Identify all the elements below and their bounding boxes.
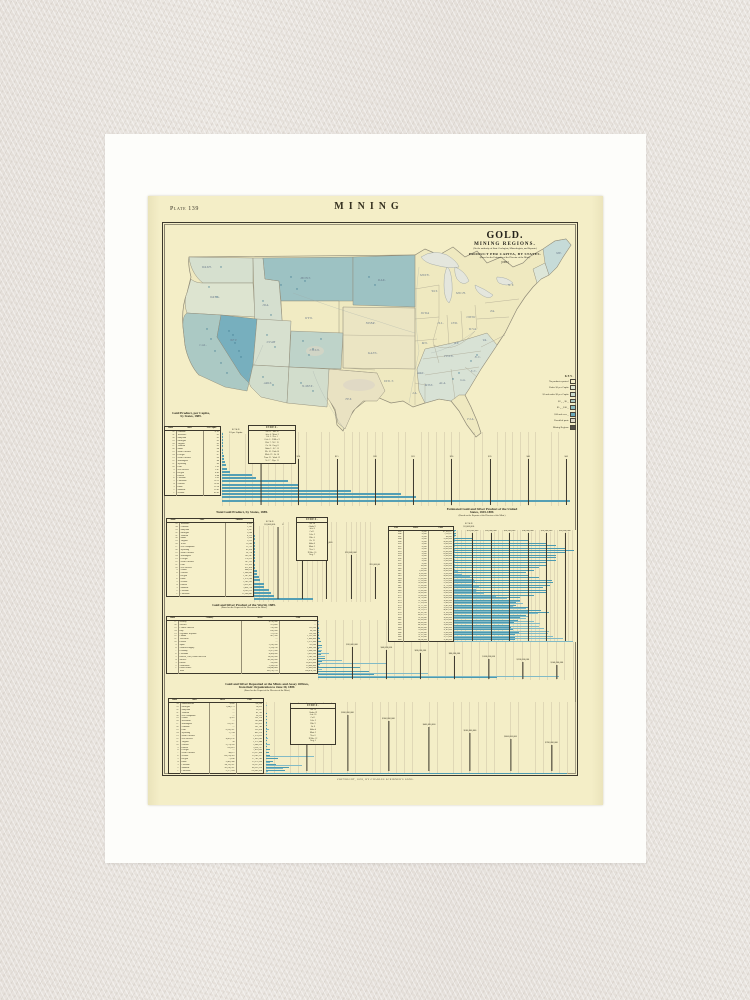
map-state-label: IND.T. <box>384 379 394 383</box>
scale-label-text: $15 <box>335 456 339 458</box>
key-row: Unsettled parts <box>510 418 576 425</box>
scale-label-text: $140,000,000 <box>550 662 563 664</box>
percapita-scale-note: SCALE. $1 per Capita. <box>224 428 248 434</box>
deposited-index-box: INDEX. Ala. 16Alaska 19Ariz. 10Cal. 1Col… <box>290 703 336 745</box>
scale-tick-line <box>352 647 353 679</box>
map-state-label: KY. <box>454 341 459 345</box>
scale-label: $5,000,000 <box>273 524 284 599</box>
scale-label: $30 <box>449 456 453 505</box>
map-key: KEY. No product reported Under $1 per Ca… <box>510 375 576 431</box>
scale-label-text: $20,000,000 <box>346 644 358 646</box>
scale-tick-line <box>490 459 491 505</box>
scale-tick-line <box>260 459 261 505</box>
deposited-header: Gold and Silver Deposited at the Mints a… <box>162 682 372 693</box>
scale-tick-line <box>388 721 389 771</box>
map-state-label: MICH. <box>456 291 466 295</box>
scale-tick-line <box>528 459 529 505</box>
table-row: 1 Nevada 45.62 <box>165 492 221 495</box>
scale-tick-line <box>298 459 299 505</box>
scale-label-text: $80,000,000 <box>448 653 460 655</box>
deposited-table: Rank State Silver Gold 24 Massachusetts … <box>168 698 264 774</box>
map-state-label: N.Y. <box>508 283 514 287</box>
scale-tick-line <box>413 459 414 505</box>
gold-cell: 736,982,858 <box>236 770 264 773</box>
map-state-label: GA. <box>460 378 466 382</box>
key-swatch <box>570 385 576 390</box>
scale-tick-line <box>566 459 567 505</box>
atlas-plate: Plate 139 MINING <box>148 196 603 805</box>
map-state-label: CAL. <box>199 343 207 347</box>
map-source-note: (Based on the Estimates of the Director … <box>445 257 565 260</box>
rank-cell: 1 <box>165 492 177 495</box>
scale-label: $20,000,000 <box>346 644 358 679</box>
scale-label-text: $300,000,000 <box>382 718 395 720</box>
scale-tick-line <box>557 665 558 679</box>
scale-label: $20 <box>373 456 377 505</box>
gold-cell: 104,674,300 <box>279 670 318 673</box>
scale-label: $45 <box>564 456 568 505</box>
total-scale-note: SCALE. $1,000,000. <box>258 520 282 526</box>
map-state-label: OREG. <box>210 295 221 299</box>
scale-tick-line <box>429 727 430 771</box>
scale-label-text: $30,000,000 <box>503 530 515 532</box>
map-state-label: NEV. <box>230 338 237 342</box>
scale-tick-line <box>454 656 455 679</box>
world-header-note: (Based on the Report of the Director of … <box>166 607 322 610</box>
scale-label-text: $200,000,000 <box>341 712 354 714</box>
rank-cell <box>167 670 179 673</box>
key-swatch <box>570 412 576 417</box>
scale-label-text: $40,000,000 <box>522 530 534 532</box>
scale-label-text: $120,000,000 <box>516 659 529 661</box>
map-state-label: MONT. <box>301 276 312 280</box>
map-state-label: TENN. <box>444 354 454 358</box>
percapita-table: Rank State Per Capita 22 Alabama $ .01 2… <box>164 426 221 496</box>
scale-label-text: $20,000,000 <box>345 552 357 554</box>
amount-cell: 12,266,841 <box>225 593 254 596</box>
key-label: $2 „ „ $5 „ <box>558 400 568 403</box>
map-state-label: TEX. <box>345 397 352 401</box>
map-state-label: NEBR. <box>366 321 376 325</box>
estimated-chart: $10,000,000$20,000,000$30,000,000$40,000… <box>454 530 576 642</box>
index-line: Vt. 17 · Wyo. 11 <box>249 460 295 463</box>
rank-cell: 1 <box>169 770 181 773</box>
art-print-mat: Plate 139 MINING <box>105 134 646 863</box>
map-state-label: FLA. <box>467 417 474 421</box>
scale-tick-line <box>278 527 279 599</box>
key-swatch <box>570 392 576 397</box>
map-state-label: ALA. <box>439 381 446 385</box>
map-state-label: ILL. <box>438 321 444 325</box>
key-row: $1 and under $2 per Capita <box>510 391 576 398</box>
world-header: Gold and Silver Product of the World, 18… <box>166 603 322 610</box>
scale-label-text: $50,000,000 <box>540 530 552 532</box>
year-cell: 1889 <box>389 639 404 642</box>
scale-tick-line <box>565 533 566 641</box>
key-label: Mining Regions <box>553 426 568 429</box>
scale-tick-line <box>451 459 452 505</box>
key-swatch <box>570 379 576 384</box>
map-state-label: N.C. <box>475 355 482 359</box>
state-nebraska-kansas <box>343 307 415 369</box>
key-label: Under $1 per Capita <box>549 386 568 389</box>
map-state-label: PA. <box>490 309 495 313</box>
scale-label: $40,000,000 <box>380 647 392 679</box>
page-header: MINING <box>162 201 576 212</box>
title-block: GOLD. MINING REGIONS. (On the authority … <box>445 230 565 264</box>
map-authority-note: (On the authority of State Geologists, M… <box>445 248 565 251</box>
key-label: $10 and over „ <box>554 413 568 416</box>
silver-cell: 5,377,264 <box>209 770 236 773</box>
map-state-label: IND. <box>451 321 458 325</box>
key-label: $1 and under $2 per Capita <box>543 393 569 396</box>
scale-tick-line <box>509 533 510 641</box>
state-cell: Nevada <box>176 492 203 495</box>
scale-label-text: $30 <box>449 456 453 458</box>
scale-label: $600,000,000 <box>504 736 517 771</box>
map-year: [1889.] <box>445 261 565 264</box>
scale-label: $140,000,000 <box>550 662 563 679</box>
estimated-scale-note: SCALE. $1,000,000. <box>456 522 482 528</box>
scale-tick-line <box>347 715 348 771</box>
scale-label: $10 <box>296 456 300 505</box>
scale-label-text: $25 <box>411 456 415 458</box>
percapita-index-box: INDEX. Ala. 22 · Md. 20Ariz. 4 · Mont. 2… <box>248 425 296 464</box>
scale-label: $200,000,000 <box>341 712 354 771</box>
map-state-label: MISS. <box>425 383 434 387</box>
scale-label-text: $700,000,000 <box>545 742 558 744</box>
scale-label-text: $20,000,000 <box>485 530 497 532</box>
key-label: $5 „ „ $10 „ <box>557 406 569 409</box>
scale-tick-line <box>420 653 421 679</box>
key-swatch <box>570 418 576 423</box>
estimated-header-note: (Based on the Reports of the Director of… <box>388 515 576 518</box>
scale-tick-line <box>472 533 473 641</box>
map-state-label: UTAH <box>267 340 276 344</box>
scale-label: $120,000,000 <box>516 659 529 679</box>
map-title: GOLD. <box>445 230 565 241</box>
silver-cell: 64,646,464 <box>403 639 428 642</box>
scale-label: $50,000,000 <box>540 530 552 641</box>
total-header: Total Gold Product, by States, 1889. <box>172 510 312 514</box>
table-row: Total 141,130,714 104,674,300 <box>167 670 318 673</box>
scale-label-text: $60,000,000 <box>414 650 426 652</box>
copyright-line: COPYRIGHT, 1892, BY CHARLES SCRIBNER'S S… <box>148 778 603 781</box>
index-line: Oreg. 5 <box>291 740 335 743</box>
world-table: Rank Country Silver Gold 17 Norway $ 126… <box>166 616 318 674</box>
map-state-label: COLO. <box>310 348 321 352</box>
scale-label: $80,000,000 <box>448 653 460 679</box>
scale-tick-line <box>510 739 511 771</box>
key-row: $2 „ „ $5 „ <box>510 398 576 405</box>
scale-label: $60,000,000 <box>559 530 571 641</box>
index-line: Oreg. 7 <box>297 554 327 557</box>
scale-label-text: $100,000,000 <box>482 656 495 658</box>
map-state-label: IOWA <box>421 311 430 315</box>
map-state-label: W.VA. <box>469 327 478 331</box>
scale-tick-line <box>351 555 352 599</box>
gold-cell: 32,800,000 <box>428 639 453 642</box>
scale-label: $35 <box>488 456 492 505</box>
scale-tick-line <box>470 733 471 771</box>
scale-label: $60,000,000 <box>414 650 426 679</box>
scale-tick-line <box>375 459 376 505</box>
map-state-label: S.C. <box>471 369 477 373</box>
scale-label: $40,000,000 <box>522 530 534 641</box>
scale-unit: $1,000,000. <box>457 525 481 528</box>
key-row: No product reported <box>510 378 576 385</box>
key-swatch <box>570 425 576 430</box>
scale-tick-line <box>523 662 524 679</box>
map-state-label: N.MEX. <box>302 384 314 388</box>
scale-label: $25 <box>411 456 415 505</box>
deposited-header-note: (Based on the Report of the Director of … <box>162 690 372 693</box>
scale-unit: $1,000,000. <box>259 523 281 526</box>
scale-label-text: $20 <box>373 456 377 458</box>
scale-label: $25,000,000 <box>369 564 380 599</box>
scale-tick-line <box>336 459 337 505</box>
scale-tick-line <box>491 533 492 641</box>
map-state-label: ARIZ. <box>264 381 273 385</box>
map-state-label: VA. <box>482 338 487 342</box>
map-state-label: KANS. <box>368 351 378 355</box>
table-row: 1 California 5,377,264 736,982,858 <box>169 770 264 773</box>
table-row: 1889 64,646,464 32,800,000 <box>389 639 454 642</box>
map-state-label: ARK. <box>417 371 425 375</box>
scale-label: $20,000,000 <box>485 530 497 641</box>
state-washington <box>189 257 253 283</box>
scale-tick-line <box>528 533 529 641</box>
scale-tick-line <box>551 745 552 771</box>
map-state-label: IDA. <box>263 303 270 307</box>
scale-label-text: $10 <box>296 456 300 458</box>
scale-label: $10,000,000 <box>466 530 478 641</box>
scale-label-text: $35 <box>488 456 492 458</box>
scale-label-text: $500,000,000 <box>463 730 476 732</box>
wall: Plate 139 MINING <box>0 0 750 1000</box>
table-row: 1 California 12,266,841 <box>167 593 254 596</box>
scale-unit: $1 per Capita. <box>225 431 247 434</box>
value-cell: 45.62 <box>203 492 221 495</box>
estimated-table: Year Silver Gold 1845 50,000 $ 1,008,327… <box>388 526 454 642</box>
scale-label-text: $40,000,000 <box>380 647 392 649</box>
scale-label-text: $45 <box>564 456 568 458</box>
key-swatch <box>570 405 576 410</box>
scale-label-text: $400,000,000 <box>422 724 435 726</box>
state-cell: California <box>180 770 209 773</box>
rank-cell: 1 <box>167 593 180 596</box>
total-table: Rank State Amount 25 Tennessee $ 800 24 … <box>166 518 254 597</box>
scale-label-text: $60,000,000 <box>559 530 571 532</box>
key-row: $5 „ „ $10 „ <box>510 404 576 411</box>
percapita-header: Gold Product, per Capita, by States, 188… <box>158 411 224 419</box>
scale-label-text: $25,000,000 <box>369 564 380 566</box>
scale-label-text: $40 <box>526 456 530 458</box>
scale-label: $20,000,000 <box>345 552 357 599</box>
map-state-label: MINN. <box>420 273 430 277</box>
scale-label: $40 <box>526 456 530 505</box>
scale-label: $100,000,000 <box>482 656 495 679</box>
silver-cell: 141,130,714 <box>241 670 279 673</box>
scale-label: $500,000,000 <box>463 730 476 771</box>
scale-label: $15 <box>335 456 339 505</box>
scale-label: $700,000,000 <box>545 742 558 771</box>
scale-label-text: $600,000,000 <box>504 736 517 738</box>
map-state-label: DAK. <box>378 278 386 282</box>
map-state-label: LA. <box>412 391 417 395</box>
country-cell: Total <box>178 670 241 673</box>
state-cell: California <box>179 593 225 596</box>
map-state-label: WYO. <box>305 316 314 320</box>
key-label: No product reported <box>549 380 568 383</box>
scale-tick-line <box>386 650 387 679</box>
map-state-label: WIS. <box>431 289 438 293</box>
map-state-label: WASH. <box>202 265 212 269</box>
key-row: $10 and over „ <box>510 411 576 418</box>
scale-tick-line <box>375 567 376 599</box>
scale-tick-line <box>488 659 489 679</box>
map-state-label: OHIO <box>467 315 476 319</box>
scale-label: $300,000,000 <box>382 718 395 771</box>
total-index-box: INDEX. Ala. 24Alaska 9Ariz. 8Cal. 1Colo.… <box>296 517 328 561</box>
key-row: Mining Regions <box>510 424 576 431</box>
scale-label: $30,000,000 <box>503 530 515 641</box>
map-state-label: MO. <box>422 341 429 345</box>
key-swatch <box>570 399 576 404</box>
key-row: Under $1 per Capita <box>510 385 576 392</box>
scale-label-text: $10,000,000 <box>466 530 478 532</box>
chart-scale-labels: $10,000,000$20,000,000$30,000,000$40,000… <box>454 530 576 642</box>
percapita-header-line2: by States, 1889. <box>158 415 224 419</box>
estimated-header: Estimated Gold and Silver Product of the… <box>388 507 576 518</box>
scale-label: $400,000,000 <box>422 724 435 771</box>
total-header-line1: Total Gold Product, by States, 1889. <box>172 510 312 514</box>
unsettled-patch <box>343 379 375 391</box>
key-label: Unsettled parts <box>554 419 568 422</box>
scale-tick-line <box>546 533 547 641</box>
key-rows: No product reported Under $1 per Capita … <box>510 378 576 431</box>
